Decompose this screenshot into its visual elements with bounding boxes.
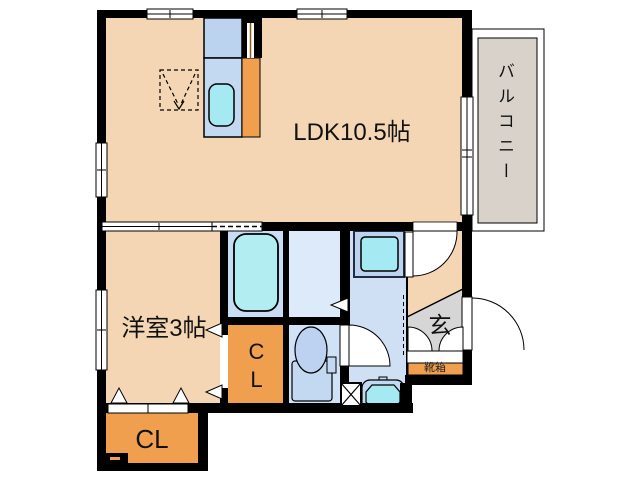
kitchen-sink — [209, 84, 234, 126]
toilet-door-leaf — [340, 325, 349, 366]
hallway-door-leaf — [405, 232, 413, 277]
entrance-label: 玄 — [418, 306, 462, 340]
wall-left — [97, 10, 106, 471]
closet-bottom-folding-door — [108, 404, 188, 413]
pipe-space-box — [341, 383, 361, 406]
bathtub — [234, 234, 278, 311]
toilet-bowl — [295, 327, 327, 373]
window-ldk-left — [96, 143, 107, 197]
window-top-left — [147, 9, 193, 19]
wall-entrance-south — [405, 375, 472, 385]
wall-closet-notch-mark — [110, 457, 120, 460]
kitchen-upper-cabinet — [204, 18, 242, 58]
wall-washbasin-east — [400, 383, 412, 413]
wall-closet-bottom — [97, 463, 208, 471]
kitchen-end-panel — [242, 58, 260, 137]
wall-bath-column — [283, 230, 289, 403]
opening-ldk-hallway — [413, 222, 457, 231]
floorplan-drawing — [0, 0, 638, 480]
wall-toilet-east — [340, 366, 349, 383]
window-balcony-door — [461, 97, 473, 215]
shoebox-label: 靴箱 — [407, 361, 463, 375]
closet-bottom-label: CL — [106, 424, 198, 455]
sliding-door-ldk-western — [102, 222, 212, 231]
western-room-label: 洋室3帖 — [94, 308, 234, 343]
balcony-label: バルコニー — [492, 62, 517, 202]
window-top-right — [297, 9, 347, 19]
wall-bath-south — [220, 317, 350, 325]
opening-dashed-ldk — [212, 222, 262, 231]
floorplan-image: LDK10.5帖 洋室3帖 CL CL 玄 靴箱 バルコニー — [0, 0, 638, 480]
wall-closet-east — [198, 413, 208, 471]
closet-middle-label: CL — [241, 336, 269, 398]
toilet-flush-unit — [327, 357, 336, 373]
front-door-swing — [472, 298, 524, 350]
ldk-label: LDK10.5帖 — [262, 112, 442, 147]
washing-machine — [361, 237, 398, 271]
